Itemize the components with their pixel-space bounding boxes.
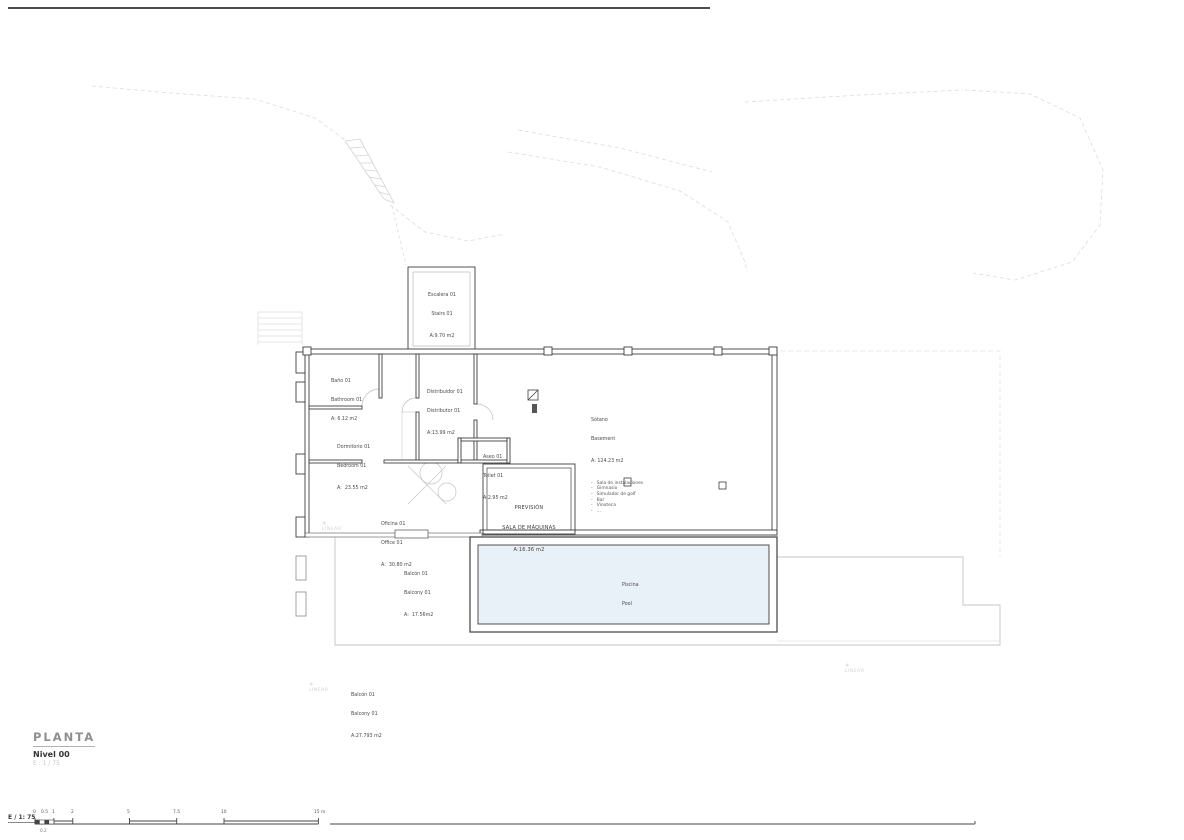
room-name-es: Balcón 01 — [404, 572, 433, 578]
watermark-text: LINEAR — [322, 527, 342, 532]
room-name-es: Aseo 01 — [483, 455, 508, 461]
scale-tick: 5 — [127, 810, 130, 815]
room-area: A: 6.12 m2 — [331, 417, 362, 423]
room-label-basement: Sótano Basement A: 124.23 m2 - Sala de i… — [591, 406, 643, 521]
watermark-text: LINEAR — [845, 669, 865, 674]
scale-tick: 15 m — [314, 810, 325, 815]
scale-sub-tick: 0.2 — [40, 828, 47, 833]
room-name-es: Distribuidor 01 — [427, 390, 463, 396]
room-label-bathroom: Baño 01 Bathroom 01 A: 6.12 m2 — [331, 367, 362, 429]
scale-tick: 0 — [33, 810, 36, 815]
room-label-hall: Distribuidor 01 Distributor 01 A:13.99 m… — [427, 378, 463, 443]
room-area: A: 124.23 m2 — [591, 459, 643, 465]
room-name-en: Balcony 01 — [351, 712, 382, 718]
room-area: A:27.793 m2 — [351, 734, 382, 740]
room-name-en: Toilet 01 — [483, 474, 508, 480]
room-label-bedroom: Dormitorio 01 Bedroom 01 A: 23.55 m2 — [337, 433, 370, 498]
room-name-en: Balcony 01 — [404, 591, 433, 597]
list-item: - ... — [591, 509, 643, 515]
room-label-balcony-upper: Balcón 01 Balcony 01 A: 17.56m2 — [404, 560, 433, 625]
room-area: A:13.99 m2 — [427, 431, 463, 437]
watermark-logo: ✳ LINEAR — [305, 677, 329, 693]
room-name-es: Piscina — [622, 583, 639, 589]
scale-tick: 0.5 — [41, 810, 48, 815]
room-name-en: Bathroom 01 — [331, 398, 362, 404]
scale-tick: 2 — [71, 810, 74, 815]
room-label-balcony-lower: Balcón 01 Balcony 01 A:27.793 m2 — [351, 681, 382, 746]
scale-tick: 10 — [221, 810, 227, 815]
room-name-en: Distributor 01 — [427, 409, 463, 415]
room-label-pool: Piscina Pool — [622, 571, 639, 615]
room-name-en: Pool — [622, 602, 639, 608]
title-block: PLANTA Nivel 00 E : 1 / 75 — [33, 726, 95, 767]
room-area: A: 23.55 m2 — [337, 486, 370, 492]
room-label-machine-room: PREVISIÓN SALA DE MÁQUINAS A:16.36 m2 — [498, 492, 560, 560]
sheet-level: Nivel 00 — [33, 750, 95, 759]
room-name-es: Escalera 01 — [418, 293, 466, 299]
watermark-text: LINEAR — [309, 688, 329, 693]
room-area: A: 17.56m2 — [404, 613, 433, 619]
room-name-en: Basement — [591, 437, 643, 443]
room-name-en: Stairs 01 — [418, 312, 466, 318]
basement-uses-list: - Sala de instalaciones- Gimnasio- Simul… — [591, 481, 643, 515]
room-area: A:16.36 m2 — [498, 547, 560, 554]
watermark-logo: ✳ LINEAR — [841, 658, 865, 674]
watermark-logo: ✳ LINEAR — [318, 516, 342, 532]
room-label-stairs: Escalera 01 Stairs 01 A:9.70 m2 — [418, 281, 466, 346]
terrain-stairs-hatch — [345, 139, 394, 203]
room-name-es: Sótano — [591, 418, 643, 424]
scale-tick: 7.5 — [173, 810, 180, 815]
machine-room-line1: PREVISIÓN — [498, 505, 560, 512]
machine-room-line2: SALA DE MÁQUINAS — [498, 525, 560, 532]
room-area: A:9.70 m2 — [418, 334, 466, 340]
scale-tick: 1 — [52, 810, 55, 815]
room-name-es: Baño 01 — [331, 379, 362, 385]
room-name-es: Balcón 01 — [351, 693, 382, 699]
sheet-scale: E : 1 / 75 — [33, 760, 95, 767]
room-name-es: Oficina 01 — [381, 522, 412, 528]
list-item: - Simulador de golf — [591, 492, 643, 498]
room-name-es: Dormitorio 01 — [337, 445, 370, 451]
room-name-en: Bedroom 01 — [337, 464, 370, 470]
sheet-title: PLANTA — [33, 730, 95, 747]
scale-bar: E / 1: 75 0 0.5 1 2 5 7.5 10 15 m 0.2 — [0, 808, 1010, 840]
room-name-en: Office 01 — [381, 541, 412, 547]
